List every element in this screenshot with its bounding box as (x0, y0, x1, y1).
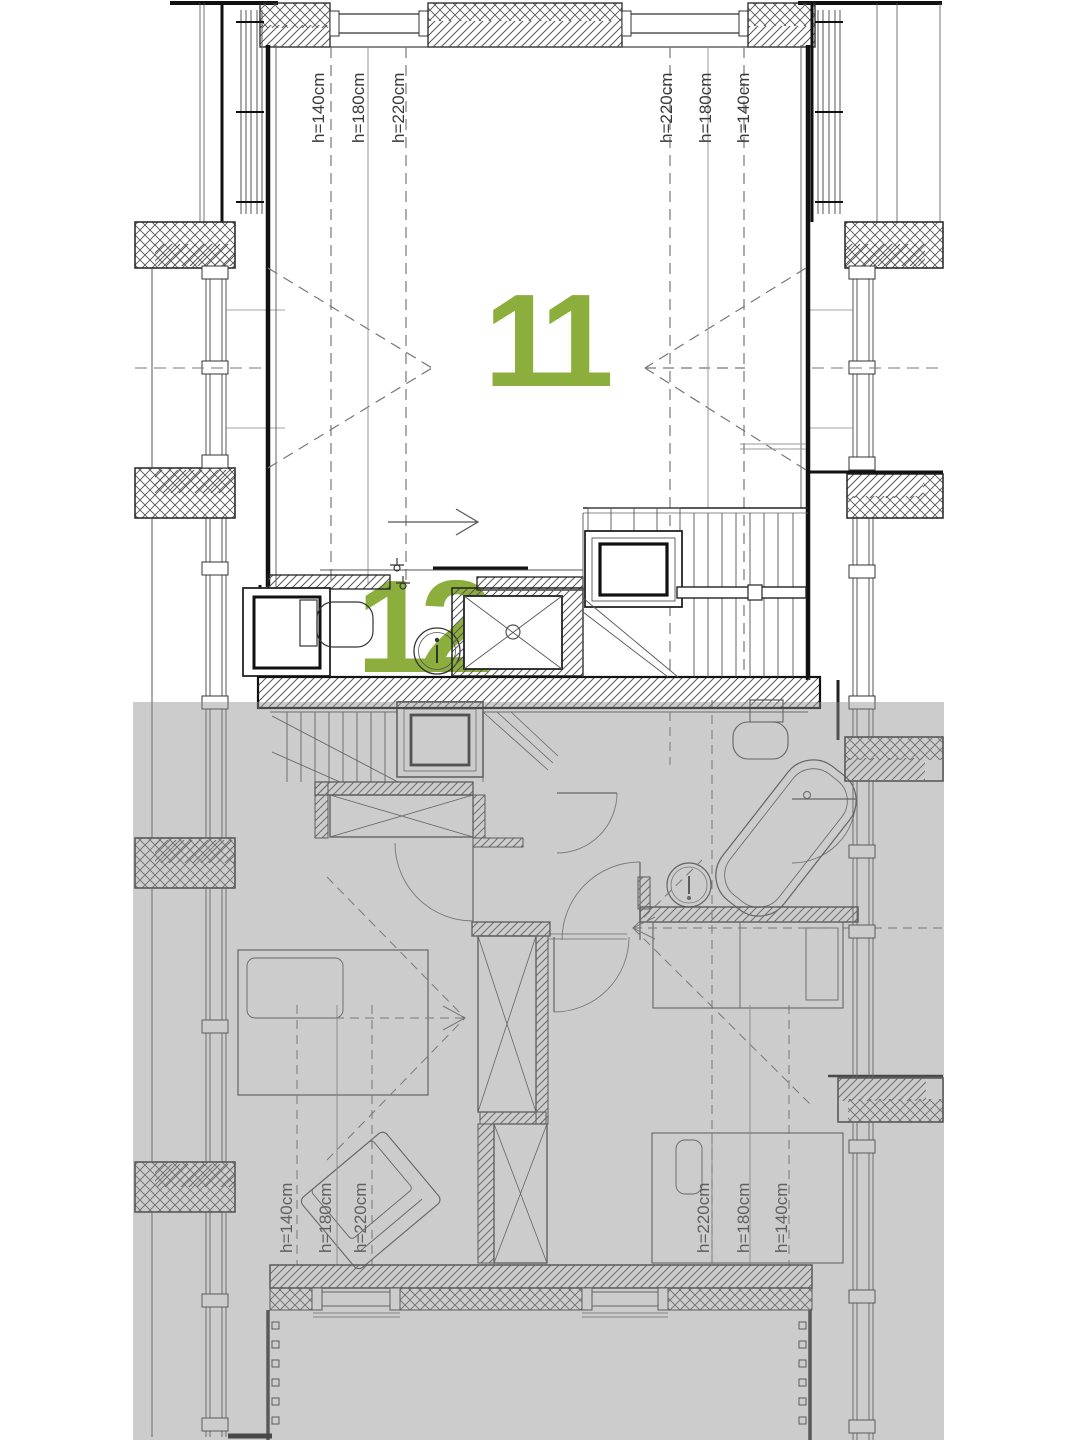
floor-plan-page: 11 12 (0, 0, 1080, 1440)
shower (452, 588, 583, 676)
height-label: h=140cm (734, 73, 753, 143)
stair-handrail (677, 587, 806, 598)
lower-floor-overlay (133, 702, 944, 1440)
height-label: h=180cm (349, 73, 368, 143)
floor-plan-canvas: 11 12 (0, 0, 1080, 1440)
room-number-11: 11 (484, 267, 610, 414)
height-label: h=140cm (309, 73, 328, 143)
height-label: h=220cm (389, 73, 408, 143)
height-label: h=220cm (657, 73, 676, 143)
height-label: h=180cm (696, 73, 715, 143)
